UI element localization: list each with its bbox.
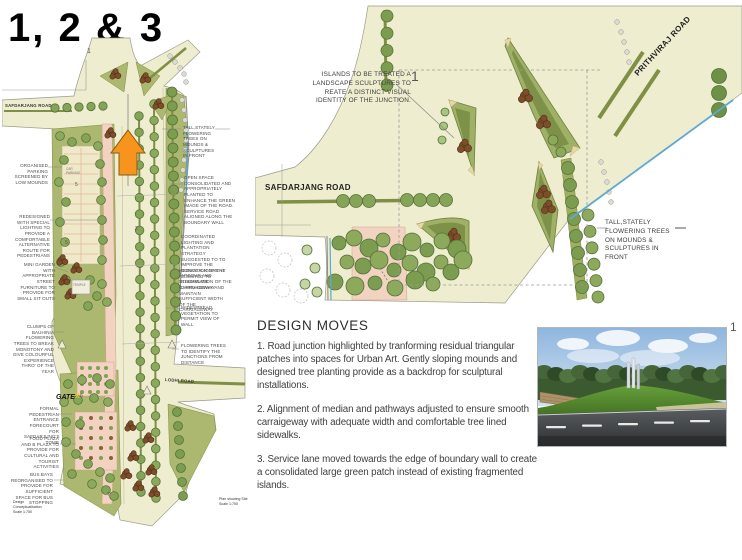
- junction-plan-detail: ISLANDS TO BE TREATED A LANDSCAPE SCULPT…: [255, 0, 742, 305]
- design-move-3: 3. Service lane moved towards the edge o…: [257, 453, 539, 492]
- annotation-parking: ORGANISED PARKING SCREENED BY LOW MOUNDS: [12, 163, 48, 186]
- annotation-flowering-junctions: FLOWERING TREES TO IDENTIFY THE JUNCTION…: [181, 343, 227, 366]
- annotation-open-space: OPEN SPACE CONSOLIDATED AND APPROPRIATEL…: [184, 175, 237, 226]
- design-moves-section: DESIGN MOVES 1. Road junction highlighte…: [257, 318, 539, 503]
- junction-marker-1: 1: [411, 68, 419, 84]
- master-marker-1: 1: [87, 48, 91, 55]
- safdarjang-road-label-junction: SAFDARJANG ROAD: [265, 183, 351, 192]
- annotation-tall-trees-junction: TALL,STATELY FLOWERING TREES ON MOUNDS &…: [605, 219, 679, 263]
- annotation-flowering-clumps: CLUMPS OF BAUHINIA FLOWERING TREES TO BR…: [12, 324, 54, 375]
- safdarjang-road-label: SAFDARJANG ROAD: [5, 103, 52, 108]
- design-moves-title: DESIGN MOVES: [257, 318, 539, 333]
- temple-label: TEMPLE: [73, 284, 89, 288]
- car-parking-label: CAR PARKING: [66, 168, 81, 176]
- caption-left-line2: Scale 1:750: [13, 510, 49, 515]
- gate-x-marker: X: [75, 393, 80, 400]
- photo-road-shadow: [538, 436, 726, 446]
- plan-number: 5: [75, 182, 78, 188]
- annotation-food-plaza: FOOD PLAZA AND B PLAZA TO PROVIDE FOR CU…: [19, 436, 59, 470]
- annotation-mini-garden: MINI GARDEN WITH APPROPRIATE STREET FURN…: [15, 262, 55, 301]
- gate-label: GATE: [56, 394, 75, 401]
- caption-left: Design Conceptualisation Scale 1:750: [13, 500, 49, 515]
- design-move-1: 1. Road junction highlighted by tranform…: [257, 340, 539, 392]
- plan-number: 6: [80, 393, 83, 399]
- presentation-board: 1, 2 & 3 1 SAFDARJANG ROAD LODHI ROAD GA…: [0, 0, 742, 560]
- design-move-2: 2. Alignment of median and pathways adju…: [257, 403, 539, 442]
- junction-photo: [537, 327, 727, 447]
- annotation-islands: ISLANDS TO BE TREATED A LANDSCAPE SCULPT…: [295, 71, 411, 106]
- photo-figure-number: 1: [730, 320, 737, 334]
- annotation-tall-trees: TALL,STATELY FLOWERING TREES ON MOUNDS &…: [183, 125, 211, 159]
- annotation-lighting: REDESIGNED WITH SPECIAL LIGHTING TO PROV…: [10, 214, 50, 259]
- master-plan: 1 SAFDARJANG ROAD LODHI ROAD GATE X TEMP…: [2, 34, 254, 534]
- caption-left-line1: Design Conceptualisation: [13, 500, 49, 510]
- plan-number: 5: [65, 240, 68, 246]
- annotation-vegetation-wall: WIDESPREAD VEGETATION TO PERMIT VIEW OF …: [181, 305, 231, 328]
- caption-right: Plan showing Site Scale 1:750: [219, 497, 249, 507]
- plan-number: 2: [135, 226, 138, 232]
- photo-rendering: [538, 328, 726, 446]
- plan-number: 7: [107, 492, 110, 498]
- caption-right-line2: Scale 1:750: [219, 502, 249, 507]
